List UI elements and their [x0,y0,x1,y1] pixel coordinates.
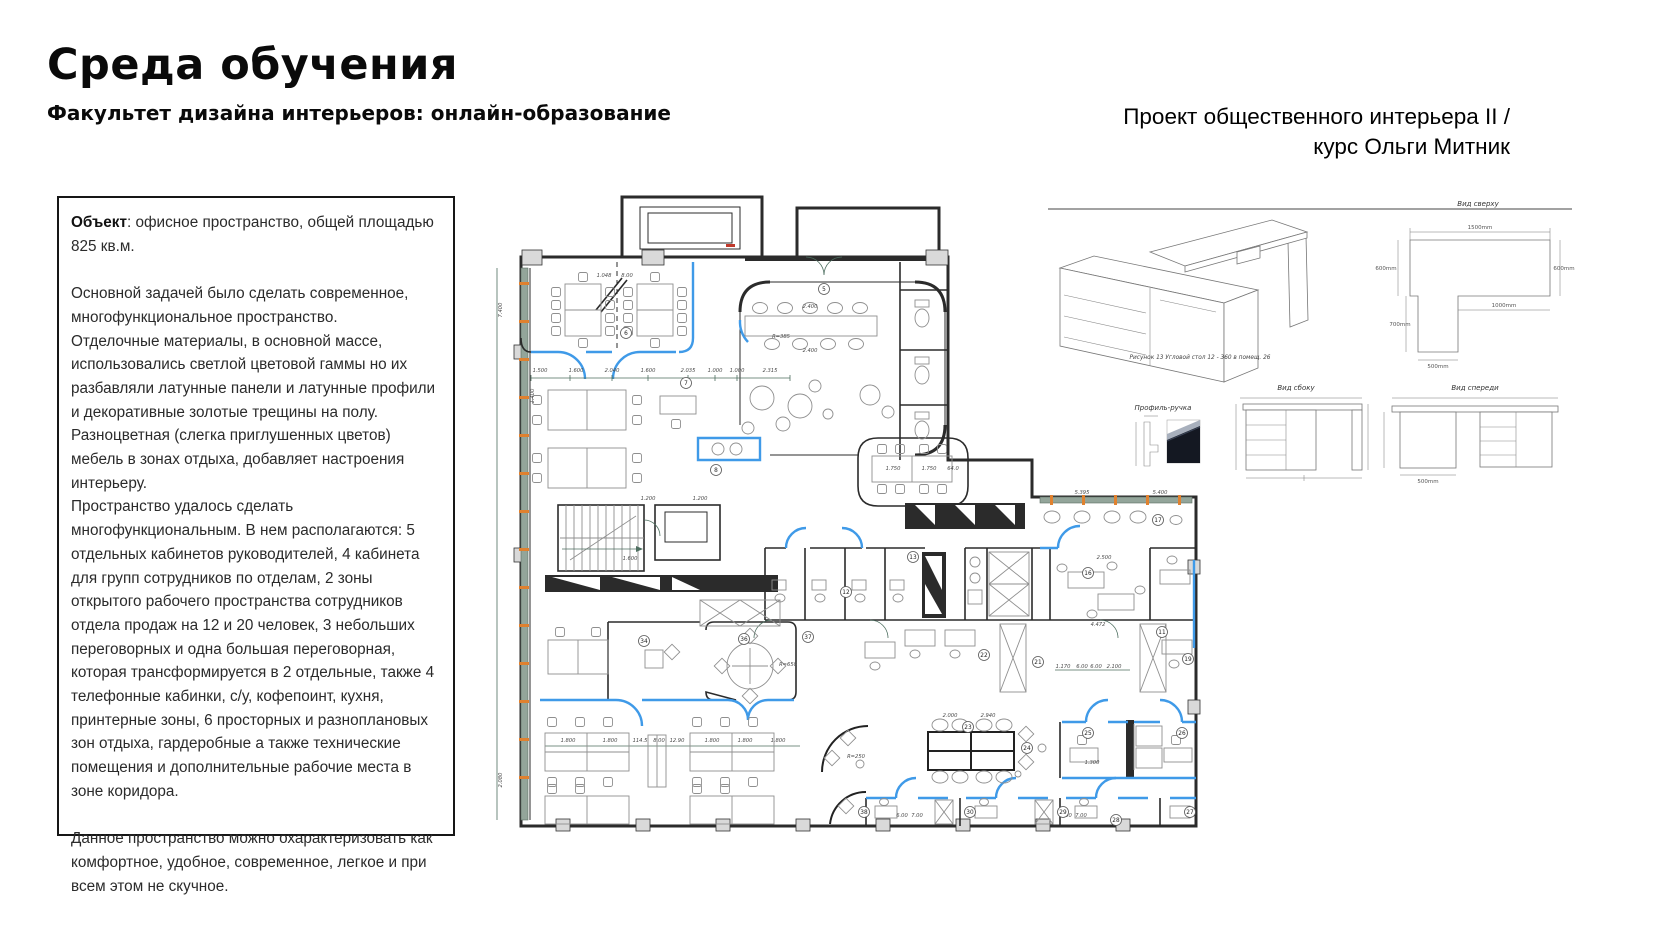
room-number-label: 36 [740,637,748,643]
front-view-drawing: Вид спереди 500mm [1384,384,1558,485]
dimension-label: 1.800 [738,738,754,744]
classroom-tables [552,273,687,348]
spacer [71,258,442,282]
dimension-label: 7.00 [911,813,923,819]
room-number-label: 12 [842,590,850,596]
room-number-label: 8 [714,468,718,474]
room-number-label: 28 [1112,818,1120,824]
dimension-label: 1.170 [1056,664,1072,670]
dimension-label: 2.400 [803,348,819,354]
room-number-label: 37 [804,635,812,641]
description-paragraph: Отделочные материалы, в основной массе, … [71,330,442,425]
room-number-label: 24 [1023,746,1031,752]
dimension-label: 6.00 [1076,664,1088,670]
room-number-label: 23 [964,725,972,731]
description-box: Объект: офисное пространство, общей площ… [57,196,455,836]
furniture-drawings-panel: Рисунок 13 Угловой стол 12 - 360 в помещ… [1040,196,1580,496]
room-number-label: 26 [1178,731,1186,737]
room-number-label: 29 [1059,810,1067,816]
side-view-drawing: Вид сбоку [1236,384,1368,481]
room-number-label: 27 [1186,810,1194,816]
dimension-label: 7.00 [1075,813,1087,819]
room-number-label: 6 [624,331,628,337]
dimension-label: 114.5 [633,738,649,744]
furniture-drawings: Рисунок 13 Угловой стол 12 - 360 в помещ… [1040,196,1580,496]
corridor-desks [865,630,975,670]
dimension-label: 1.800 [603,738,619,744]
dimension-label: 2.500 [1097,555,1113,561]
dim-500: 500mm [1427,364,1448,370]
dimension-label: 1.000 [730,368,746,374]
round-table-room [714,628,786,704]
dimension-label: 2.000 [943,713,959,719]
description-paragraph: Основной задачей было сделать современно… [71,282,442,329]
room-number-label: 25 [1084,731,1092,737]
doors-dims-layer [497,257,1130,820]
description-paragraph: Данное пространство можно охарактеризова… [71,827,442,898]
handle-photo [1167,420,1200,463]
dim-700: 700mm [1389,322,1410,328]
room-number-label: 17 [1154,518,1162,524]
dimension-label: 1.800 [771,738,787,744]
room-number-label: 19 [1184,657,1192,663]
description-paragraphs: Основной задачей было сделать современно… [71,282,442,898]
dimension-label: 2.940 [981,713,997,719]
dimension-label: 2.315 [763,368,779,374]
iso-desk-drawing: Рисунок 13 Угловой стол 12 - 360 в помещ… [1060,220,1308,382]
dimension-label: 2.040 [605,368,621,374]
handle-profile-drawing: Профиль-ручка [1135,404,1200,466]
dimension-label: 1.400 [530,388,536,404]
dimension-label: 4.472 [1091,622,1106,628]
description-paragraph: Разноцветная (слегка приглушенных цветов… [71,424,442,495]
dimension-label: 6.00 [1090,664,1102,670]
dimension-label: 1.200 [693,496,709,502]
office-16 [1057,562,1145,618]
project-title: Проект общественного интерьера II / курс… [1123,102,1510,162]
dim-1500: 1500mm [1468,225,1493,231]
dimension-label: R=250 [847,754,866,760]
object-line: Объект: офисное пространство, общей площ… [71,211,442,258]
room-number-label: 34 [640,639,648,645]
dimension-label: 1.048 [597,273,613,279]
dim-600-right: 600mm [1553,266,1574,272]
room-number-label: 38 [860,810,868,816]
page-subtitle: Факультет дизайна интерьеров: онлайн-обр… [47,101,671,125]
top-view-label: Вид сверху [1457,200,1499,208]
page-title: Среда обучения [47,40,458,90]
presentation-page: Среда обучения Факультет дизайна интерье… [0,0,1680,945]
room-number-label: 5 [822,287,826,293]
front-dim-500: 500mm [1417,479,1438,485]
dimension-label: 8.00 [653,738,665,744]
project-title-line2: курс Ольги Митник [1123,132,1510,162]
side-view-label: Вид сбоку [1277,384,1315,392]
room-number-label: 21 [1034,660,1042,666]
front-view-label: Вид спереди [1451,384,1499,392]
dimension-label: R=650 [779,662,798,668]
dimension-label: 1.300 [1085,760,1101,766]
figure-caption: Рисунок 13 Угловой стол 12 - 360 в помещ… [1130,355,1271,361]
dimension-label: 1.500 [533,368,549,374]
lounge-tables [742,380,894,434]
dimension-label: 64.0 [947,466,959,472]
dimension-label: R=385 [772,334,791,340]
project-title-line1: Проект общественного интерьера II / [1123,102,1510,132]
dimension-label: 1.750 [886,466,902,472]
meeting-table-8 [872,445,952,494]
dim-600-left: 600mm [1375,266,1396,272]
dimension-label: 1.000 [708,368,724,374]
dimension-label: 2.400 [803,304,819,310]
handle-label: Профиль-ручка [1135,404,1192,412]
dimension-label: 1.800 [561,738,577,744]
dimension-label: 1.600 [623,556,639,562]
room-number-label: 13 [909,555,917,561]
dimension-label: 1.200 [641,496,657,502]
dimension-label: 7.400 [498,302,504,318]
spacer [71,804,442,828]
room-number-label: 7 [684,381,688,387]
open-office-desks [545,718,774,825]
room-number-label: 22 [980,653,988,659]
dimension-label: 2.035 [681,368,697,374]
shafts-layer [545,503,1025,618]
bottom-rooms [875,799,1190,825]
object-label: Объект [71,214,127,231]
dimension-label: 2.080 [498,772,504,788]
dim-1000: 1000mm [1492,303,1517,309]
dimension-label: 1.600 [641,368,657,374]
wc-fixtures [915,300,929,439]
dimension-label: 8.00 [621,273,633,279]
room-number-label: 16 [1084,571,1092,577]
dimension-label: 1.750 [922,466,938,472]
room-number-label: 30 [966,810,974,816]
booths-kitchen [772,552,1029,616]
dimension-label: 2.100 [1107,664,1123,670]
dimension-label: 1.600 [569,368,585,374]
top-view-drawing: Вид сверху 1500mm 600mm 600mm 1000mm 700… [1375,200,1574,370]
dimension-label: 12.90 [670,738,686,744]
dimension-label: 6.00 [896,813,908,819]
room-number-label: 11 [1158,630,1166,636]
mini-offices [533,390,781,674]
dimension-label: 1.800 [705,738,721,744]
description-paragraph: Пространство удалось сделать многофункци… [71,495,442,803]
